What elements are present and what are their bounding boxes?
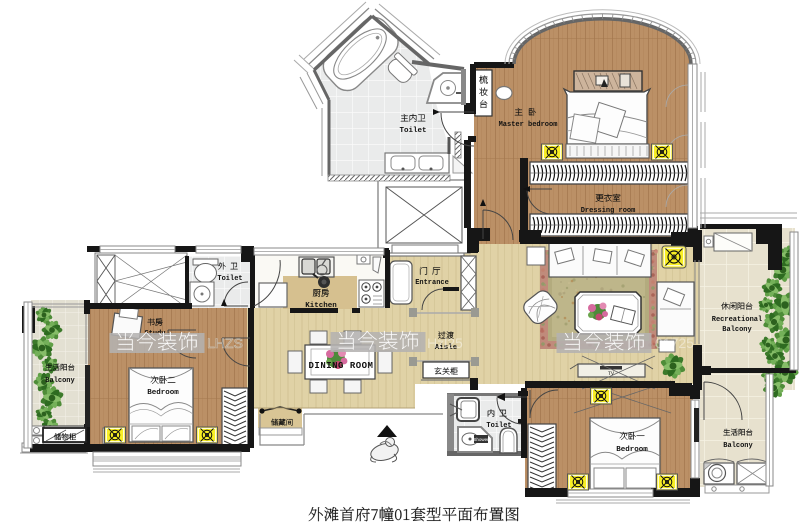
svg-text:Toilet: Toilet bbox=[217, 275, 242, 283]
svg-text:Kitchen: Kitchen bbox=[305, 302, 337, 310]
svg-text:Recreational: Recreational bbox=[712, 316, 762, 324]
svg-text:LHZS: LHZS bbox=[207, 335, 243, 351]
svg-text:Entrance: Entrance bbox=[415, 279, 449, 287]
svg-text:Master bedroom: Master bedroom bbox=[499, 121, 558, 129]
svg-text:Bedroom: Bedroom bbox=[147, 389, 179, 397]
svg-text:Toilet: Toilet bbox=[486, 422, 511, 430]
svg-text:01725: 01725 bbox=[655, 335, 694, 351]
svg-text:Toilet: Toilet bbox=[399, 127, 426, 135]
svg-text:Bedroom: Bedroom bbox=[616, 446, 648, 454]
svg-text:Balcony: Balcony bbox=[722, 326, 752, 334]
svg-text:Dressing room: Dressing room bbox=[581, 207, 636, 215]
svg-text:Hzl25: Hzl25 bbox=[427, 335, 463, 351]
svg-text:Shower: Shower bbox=[473, 437, 489, 442]
svg-text:Balcony: Balcony bbox=[45, 377, 75, 385]
svg-text:Balcony: Balcony bbox=[723, 442, 753, 450]
svg-text:DINING ROOM: DINING ROOM bbox=[309, 361, 374, 371]
